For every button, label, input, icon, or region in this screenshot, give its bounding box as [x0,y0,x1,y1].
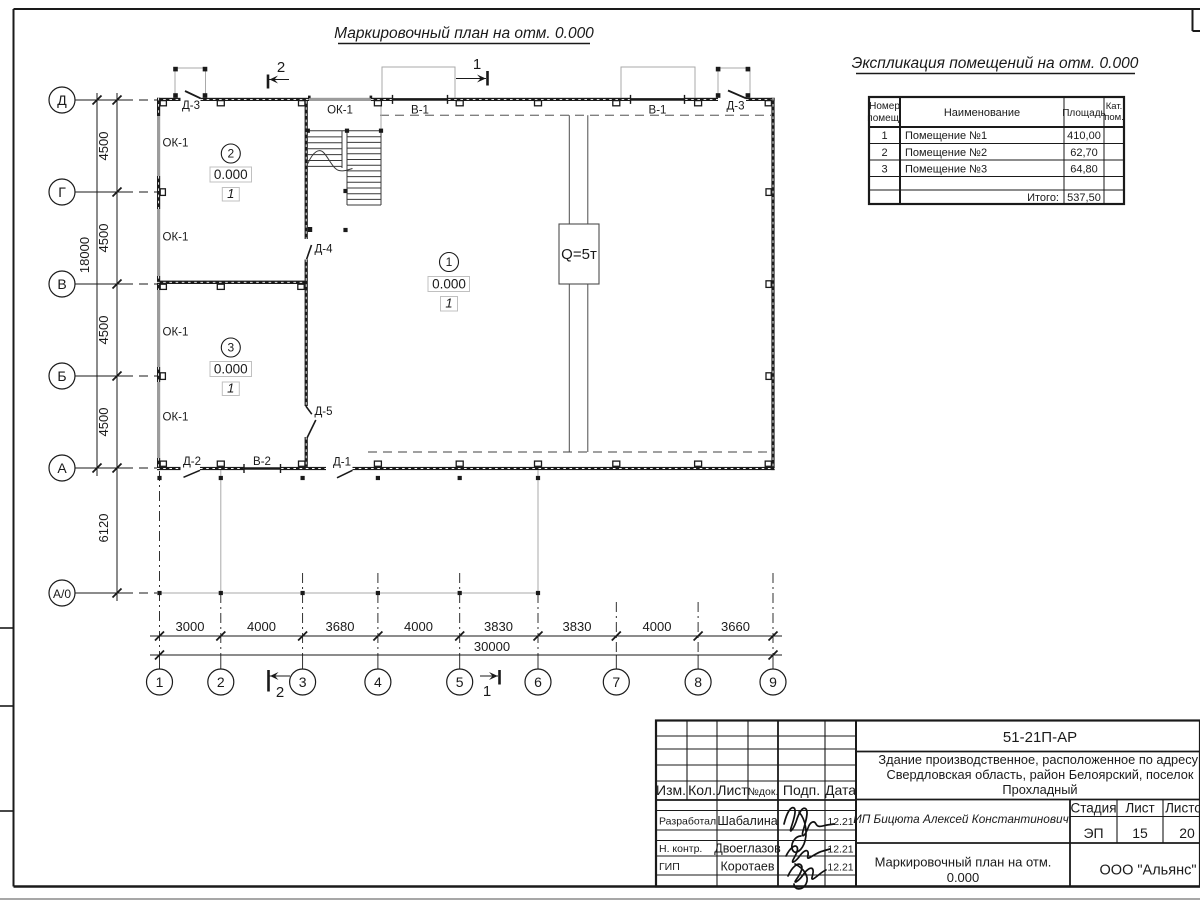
svg-text:ОК-1: ОК-1 [163,232,189,244]
svg-text:Дата: Дата [825,782,856,798]
svg-text:410,00: 410,00 [1067,130,1101,142]
svg-text:4000: 4000 [247,619,276,634]
svg-text:5: 5 [456,674,464,690]
svg-text:Д-1: Д-1 [333,457,351,469]
svg-text:ОК-1: ОК-1 [163,327,189,339]
svg-text:9: 9 [769,674,777,690]
svg-text:помещ.: помещ. [867,113,901,124]
svg-text:Свердловская область, район Бе: Свердловская область, район Белоярский, … [887,767,1194,782]
svg-text:Кол.: Кол. [688,782,716,798]
svg-text:ЭП: ЭП [1083,825,1103,841]
svg-text:4500: 4500 [96,132,111,161]
svg-text:А: А [57,460,67,476]
svg-text:2: 2 [217,674,225,690]
svg-text:Д-3: Д-3 [182,100,200,112]
svg-text:537,50: 537,50 [1067,192,1101,204]
svg-text:3660: 3660 [721,619,750,634]
svg-text:Площадь: Площадь [1062,108,1106,119]
svg-text:18000: 18000 [77,237,92,273]
svg-text:ОК-1: ОК-1 [163,412,189,424]
svg-text:12.21: 12.21 [827,844,853,856]
svg-text:0.000: 0.000 [214,167,248,182]
svg-text:Помещение №2: Помещение №2 [905,147,987,159]
svg-text:А/0: А/0 [53,587,71,601]
svg-text:1: 1 [156,674,164,690]
svg-text:0.000: 0.000 [432,277,466,292]
svg-text:Листов: Листов [1165,801,1200,816]
svg-text:1: 1 [445,296,452,311]
svg-text:ООО "Альянс": ООО "Альянс" [1100,863,1197,879]
svg-text:Прохладный: Прохладный [1002,782,1077,797]
svg-text:0.000: 0.000 [947,870,980,885]
svg-text:Экспликация помещений на отм.: Экспликация помещений на отм. 0.000 [852,55,1139,72]
svg-text:2: 2 [227,147,234,161]
svg-text:В: В [57,276,66,292]
svg-text:Разработал: Разработал [659,816,716,828]
svg-text:Маркировочный план на отм. 0.0: Маркировочный план на отм. 0.000 [334,25,594,42]
svg-text:1: 1 [446,255,453,269]
svg-text:Наименование: Наименование [944,107,1020,119]
svg-text:51-21П-АР: 51-21П-АР [1003,729,1077,746]
svg-text:20: 20 [1179,825,1195,841]
svg-text:Кат.: Кат. [1106,101,1123,112]
svg-text:4500: 4500 [96,408,111,437]
svg-text:2: 2 [277,59,285,76]
svg-text:0.000: 0.000 [214,362,248,377]
svg-text:Д-3: Д-3 [726,101,744,113]
svg-text:30000: 30000 [474,639,510,654]
svg-text:пом.: пом. [1104,112,1124,123]
svg-text:Д: Д [57,92,67,108]
svg-text:В-1: В-1 [411,105,429,117]
svg-text:Итого:: Итого: [1027,192,1059,204]
svg-text:3: 3 [227,341,234,355]
svg-text:12.21: 12.21 [827,816,853,828]
svg-text:15: 15 [1132,825,1148,841]
svg-text:1: 1 [227,186,234,201]
svg-text:4000: 4000 [643,619,672,634]
svg-text:№док.: №док. [748,786,779,798]
svg-text:Г: Г [58,184,66,200]
svg-text:1: 1 [483,683,491,700]
svg-text:64,80: 64,80 [1070,164,1098,176]
svg-text:3830: 3830 [563,619,592,634]
svg-text:Лист: Лист [717,782,748,798]
svg-text:Стадия: Стадия [1070,801,1116,816]
svg-text:Помещение №3: Помещение №3 [905,164,987,176]
svg-text:12.21: 12.21 [827,862,853,874]
svg-text:В-1: В-1 [649,105,667,117]
svg-text:Изм.: Изм. [656,782,686,798]
svg-text:Здание производственное, распо: Здание производственное, расположенное п… [878,752,1200,767]
svg-text:2: 2 [276,684,284,701]
svg-text:3000: 3000 [176,619,205,634]
svg-text:Лист: Лист [1125,801,1154,816]
svg-text:8: 8 [694,674,702,690]
svg-text:Д-2: Д-2 [183,456,201,468]
svg-text:Двоеглазов: Двоеглазов [714,842,781,856]
svg-text:4500: 4500 [96,224,111,253]
svg-text:3: 3 [299,674,307,690]
svg-text:Помещение №1: Помещение №1 [905,130,987,142]
svg-text:Б: Б [57,368,66,384]
svg-text:ОК-1: ОК-1 [163,138,189,150]
svg-text:3: 3 [881,164,887,176]
svg-text:Шабалина: Шабалина [717,814,777,828]
svg-text:Д-4: Д-4 [315,244,334,256]
svg-text:3830: 3830 [484,619,513,634]
svg-text:6120: 6120 [96,514,111,543]
svg-text:Маркировочный план на отм.: Маркировочный план на отм. [875,855,1052,870]
svg-text:Н. контр.: Н. контр. [659,843,702,855]
svg-text:ГИП: ГИП [659,861,680,873]
svg-text:7: 7 [612,674,620,690]
svg-text:62,70: 62,70 [1070,147,1098,159]
svg-text:Подп.: Подп. [783,782,820,798]
svg-text:Д-5: Д-5 [315,406,333,418]
svg-text:2: 2 [881,147,887,159]
svg-text:1: 1 [881,130,887,142]
svg-text:ОК-1: ОК-1 [327,105,353,117]
svg-text:4000: 4000 [404,619,433,634]
svg-text:Номер: Номер [869,101,900,112]
svg-text:Коротаев: Коротаев [721,860,775,874]
svg-text:ИП Бицюта Алексей Константинов: ИП Бицюта Алексей Константинович [853,812,1068,826]
svg-text:3680: 3680 [326,619,355,634]
svg-text:1: 1 [227,381,234,396]
svg-text:4500: 4500 [96,316,111,345]
svg-text:Q=5т: Q=5т [561,246,597,263]
svg-text:1: 1 [473,56,481,73]
svg-text:6: 6 [534,674,542,690]
svg-text:В-2: В-2 [253,456,271,468]
svg-text:4: 4 [374,674,382,690]
